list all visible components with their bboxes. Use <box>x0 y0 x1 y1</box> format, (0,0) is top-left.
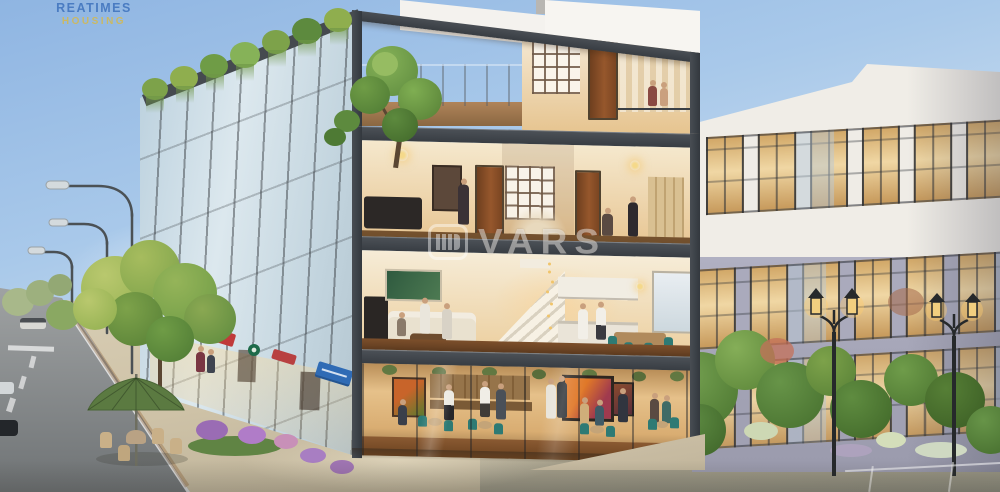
umbrella-chair <box>118 445 130 461</box>
gallery-frame-grid <box>532 42 580 94</box>
sign-blue-text-line <box>322 368 347 378</box>
person-figure <box>660 88 668 106</box>
umbrella-chair <box>100 432 112 448</box>
structural-column <box>690 134 700 466</box>
watermark-bar <box>442 234 446 250</box>
flower-purple <box>238 426 266 444</box>
garden-lantern-lamps-icon <box>788 276 1000 476</box>
vine <box>206 74 224 91</box>
painting-landscape <box>385 269 442 302</box>
flower-purple <box>196 420 228 440</box>
sign-starbucks-green-icon <box>248 344 260 356</box>
main-building-cut-face <box>352 126 700 466</box>
watermark-text: VARS <box>478 222 606 262</box>
watermark-icon <box>428 224 468 260</box>
palm-blob <box>324 128 346 146</box>
logo-line2: HOUSING <box>38 16 150 27</box>
chandelier <box>630 160 640 170</box>
piano <box>364 296 388 341</box>
pendant-light <box>636 282 644 290</box>
vine <box>236 64 254 81</box>
architectural-rendering: VARS REATIMES HOUSING <box>0 0 1000 492</box>
cafe-umbrella-icon <box>78 372 198 472</box>
frames <box>532 42 580 94</box>
person-figure <box>578 309 588 339</box>
structural-column <box>352 126 362 458</box>
watermark-bar <box>436 234 440 250</box>
bed <box>364 196 422 229</box>
person-figure <box>442 309 452 339</box>
pedestrian-figure <box>207 355 215 373</box>
car <box>0 420 18 436</box>
vine <box>268 50 286 67</box>
watermark: VARS <box>428 220 606 264</box>
kitchen-cabinets <box>558 277 638 301</box>
person-figure <box>458 184 469 224</box>
tree-blob <box>350 76 390 114</box>
umbrella-chair <box>170 438 182 454</box>
wardrobe <box>648 177 684 238</box>
person-figure <box>596 308 606 340</box>
tree-blob <box>146 316 194 362</box>
bottom-vignette <box>0 460 1000 492</box>
watermark-bar <box>454 234 460 250</box>
vine <box>298 40 316 57</box>
tree-blob <box>73 288 117 330</box>
person-figure <box>648 86 657 106</box>
tree-blob <box>372 52 398 76</box>
car <box>0 382 14 394</box>
person-figure <box>628 202 638 236</box>
logo-line1: REATIMES <box>38 2 150 16</box>
balcony-railing <box>618 108 700 110</box>
vine <box>176 86 194 103</box>
flower-bed-green <box>188 436 282 456</box>
flower-bed <box>744 422 778 440</box>
watermark-bar <box>448 234 452 250</box>
person-figure <box>420 304 430 334</box>
person-figure <box>397 318 406 336</box>
vine <box>330 28 348 45</box>
tree-blob <box>382 108 418 142</box>
umbrella-table <box>126 430 146 444</box>
structural-column <box>690 50 700 136</box>
umbrella-chair <box>152 428 164 444</box>
flower-pink <box>274 434 298 449</box>
distant-tree <box>48 274 72 296</box>
brand-logo: REATIMES HOUSING <box>38 2 150 27</box>
pedestrian-figure <box>196 352 205 372</box>
vine <box>146 96 164 113</box>
